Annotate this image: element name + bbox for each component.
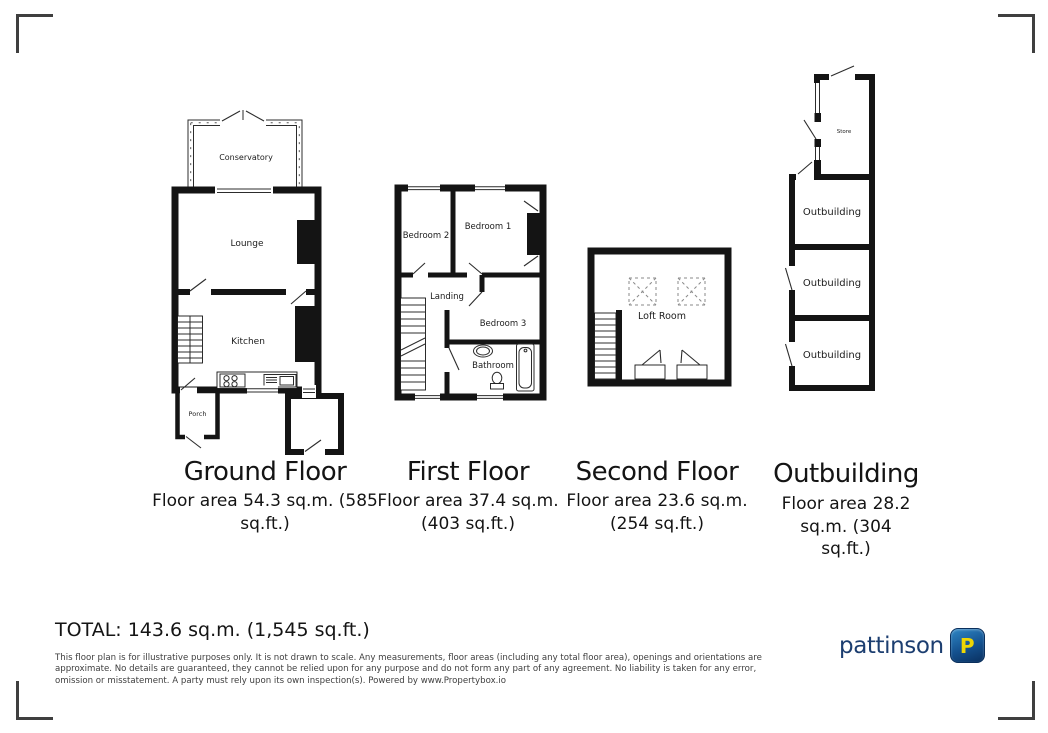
room-label-store: Store <box>837 129 852 135</box>
outbuilding-area-line1: Floor area 28.2 <box>776 493 916 516</box>
ground-floor-area: Floor area 54.3 sq.m. (585 sq.ft.) <box>140 490 390 535</box>
outbuilding-area-line2: sq.m. (304 <box>776 516 916 539</box>
room-label-bedroom1: Bedroom 1 <box>465 222 512 232</box>
corner-mark-bottom-right <box>998 681 1035 720</box>
room-label-outbuilding-2: Outbuilding <box>803 278 861 289</box>
ground-floor-area-line2: sq.ft.) <box>140 513 390 536</box>
outbuilding-area-line3: sq.ft.) <box>776 538 916 561</box>
pattinson-logo: pattinson P <box>839 628 985 663</box>
pattinson-logo-text: pattinson <box>839 633 944 659</box>
stairs <box>178 316 203 363</box>
first-floor-area-line1: Floor area 37.4 sq.m. <box>365 490 571 513</box>
stairs <box>401 298 426 390</box>
outbuilding-plan: Store Outbuilding Outbuilding Outbuildin… <box>785 62 880 397</box>
ground-floor-area-line1: Floor area 54.3 sq.m. (585 <box>140 490 390 513</box>
room-label-kitchen: Kitchen <box>231 337 265 347</box>
disclaimer-text: This floor plan is for illustrative purp… <box>55 653 795 687</box>
room-label-lounge: Lounge <box>230 239 263 249</box>
room-label-loft: Loft Room <box>638 311 686 322</box>
outbuilding-area: Floor area 28.2 sq.m. (304 sq.ft.) <box>776 493 916 561</box>
store-outline <box>817 77 872 177</box>
outbuilding-title: Outbuilding <box>716 459 976 489</box>
second-floor-area-line2: (254 sq.ft.) <box>554 513 760 536</box>
second-floor-plan: Loft Room <box>585 245 735 390</box>
floorplan-page: Conservatory Lounge Kitchen Porch <box>0 0 1048 733</box>
first-floor-plan: Bedroom 2 Bedroom 1 Landing Bedroom 3 Ba… <box>390 180 550 405</box>
room-label-porch: Porch <box>189 410 207 418</box>
second-floor-area-line1: Floor area 23.6 sq.m. <box>554 490 760 513</box>
store-top-door <box>829 66 855 81</box>
room-label-bedroom3: Bedroom 3 <box>480 319 527 329</box>
lounge-conservatory-opening <box>215 185 273 195</box>
second-floor-area: Floor area 23.6 sq.m. (254 sq.ft.) <box>554 490 760 535</box>
store-side-glazing-and-door <box>804 83 821 177</box>
corner-mark-bottom-left <box>16 681 53 720</box>
pattinson-logo-badge-icon: P <box>950 628 985 663</box>
first-floor-area-line2: (403 sq.ft.) <box>365 513 571 536</box>
first-floor-area: Floor area 37.4 sq.m. (403 sq.ft.) <box>365 490 571 535</box>
total-area-text: TOTAL: 143.6 sq.m. (1,545 sq.ft.) <box>55 619 370 641</box>
ground-floor-plan: Conservatory Lounge Kitchen Porch <box>160 100 360 460</box>
room-label-bathroom: Bathroom <box>472 361 514 371</box>
corner-mark-top-left <box>16 14 53 53</box>
rear-store-room <box>288 385 341 457</box>
corner-mark-top-right <box>998 14 1035 53</box>
room-label-conservatory: Conservatory <box>219 153 273 162</box>
room-label-outbuilding-3: Outbuilding <box>803 350 861 361</box>
room-label-landing: Landing <box>430 292 464 302</box>
room-label-outbuilding-1: Outbuilding <box>803 207 861 218</box>
stairs <box>595 310 623 383</box>
room-label-bedroom2: Bedroom 2 <box>403 231 450 241</box>
conservatory-walls <box>188 110 302 190</box>
kitchen-window <box>247 386 278 395</box>
pattinson-logo-badge-letter: P <box>960 636 975 656</box>
